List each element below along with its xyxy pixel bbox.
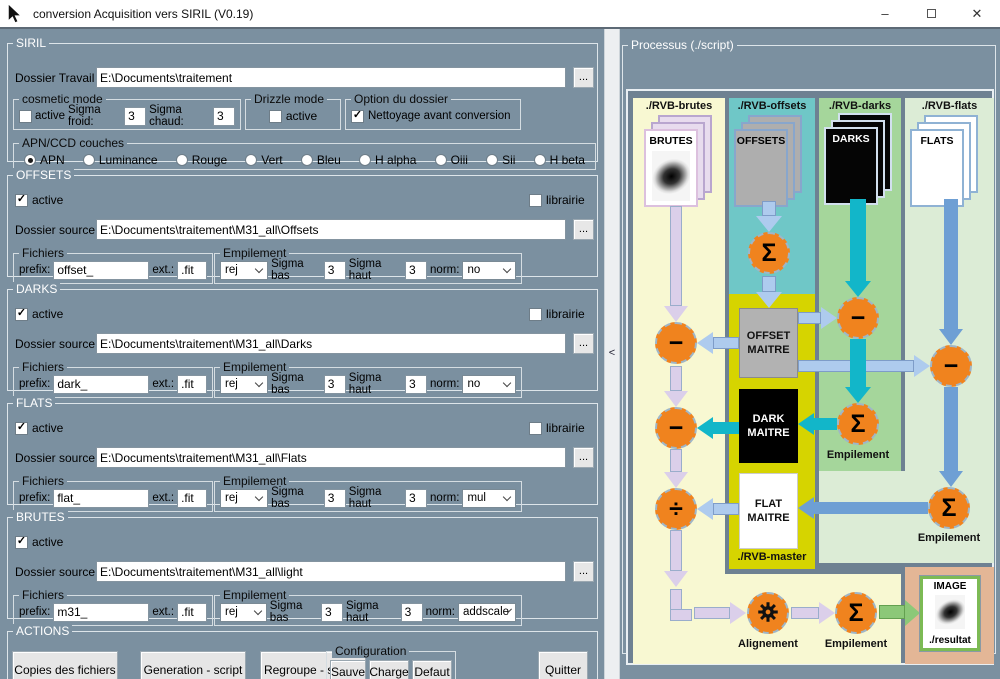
section-title: FLATS	[13, 396, 55, 410]
chevron-down-icon	[255, 264, 263, 272]
prefix-label: prefix:	[19, 378, 50, 390]
section-flats-group: FLATS active librairie Dossier source : …	[7, 396, 598, 505]
flow-arrow	[850, 199, 866, 281]
fichiers-title: Fichiers	[19, 360, 67, 374]
empilement-label: Empilement	[816, 638, 896, 650]
flow-arrowhead	[730, 602, 746, 624]
quit-button[interactable]: Quitter	[538, 651, 588, 679]
galaxy-thumbnail	[652, 151, 690, 201]
flow-arrowhead	[697, 498, 713, 520]
sum-node: Σ	[837, 403, 879, 445]
flow-arrow	[762, 276, 776, 292]
prefix-label: prefix:	[19, 264, 50, 276]
flow-arrow	[670, 366, 682, 391]
nettoyage-label: Nettoyage avant conversion	[368, 110, 511, 122]
section-active[interactable]: active	[15, 535, 63, 549]
chevron-down-icon	[255, 492, 263, 500]
section-librairie[interactable]: librairie	[529, 421, 585, 435]
couches-group: APN/CCD couches APN Luminance Rouge Vert…	[13, 136, 596, 170]
radio-oiii[interactable]: Oiii	[435, 153, 468, 167]
sigma-bas-input[interactable]	[324, 261, 346, 280]
couches-title: APN/CCD couches	[19, 136, 127, 150]
sigma-bas-label: Sigma bas	[271, 372, 321, 396]
section-librairie[interactable]: librairie	[529, 193, 585, 207]
maximize-icon	[927, 9, 936, 18]
sum-node: Σ	[835, 592, 877, 634]
source-dir-browse-button[interactable]: ...	[573, 561, 594, 582]
flow-arrowhead	[845, 281, 871, 297]
flow-arrow	[944, 199, 958, 329]
divide-node: ÷	[655, 488, 697, 530]
brutes-stack: BRUTES	[644, 115, 714, 209]
ext-label: ext.:	[152, 492, 174, 504]
norm-label: norm:	[430, 378, 459, 390]
flow-arrow	[713, 503, 739, 515]
sigma-chaud-input[interactable]	[213, 107, 235, 126]
flow-arrowhead	[845, 387, 871, 403]
darks-stack: DARKS	[824, 113, 894, 207]
fichiers-group: Fichiers prefix: ext.:	[13, 246, 213, 284]
fichiers-title: Fichiers	[19, 474, 67, 488]
flow-arrow	[670, 530, 682, 571]
generate-script-button[interactable]: Generation - script	[140, 651, 246, 679]
radio-vert[interactable]: Vert	[245, 153, 282, 167]
section-title: BRUTES	[13, 510, 68, 524]
radio-luminance[interactable]: Luminance	[83, 153, 158, 167]
source-dir-input[interactable]	[96, 447, 566, 468]
sigma-haut-input[interactable]	[405, 375, 427, 394]
flats-stack: FLATS	[910, 115, 980, 209]
sigma-froid-label: Sigma froid:	[68, 104, 121, 128]
window-controls: – ✕	[862, 0, 1000, 27]
section-darks-group: DARKS active librairie Dossier source : …	[7, 282, 598, 391]
empilement-group: Empilement rej Sigma bas Sigma haut norm…	[214, 246, 522, 284]
source-dir-browse-button[interactable]: ...	[573, 219, 594, 240]
prefix-label: prefix:	[19, 492, 50, 504]
prefix-input[interactable]	[53, 489, 149, 508]
source-dir-label: Dossier source :	[15, 337, 102, 351]
fichiers-group: Fichiers prefix: ext.:	[13, 588, 213, 626]
fichiers-group: Fichiers prefix: ext.:	[13, 360, 213, 398]
result-image-box: IMAGE ./resultat	[920, 576, 980, 651]
align-gear-node	[747, 592, 789, 634]
alignement-label: Alignement	[728, 638, 808, 650]
ext-input[interactable]	[177, 603, 207, 622]
flow-arrow	[713, 337, 739, 349]
flow-arrow	[850, 339, 866, 387]
source-dir-browse-button[interactable]: ...	[573, 447, 594, 468]
sigma-bas-label: Sigma bas	[270, 600, 318, 624]
app-window: { "window": { "title": "conversion Acqui…	[0, 0, 1000, 679]
ext-input[interactable]	[177, 489, 207, 508]
source-dir-label: Dossier source :	[15, 451, 102, 465]
flow-arrowhead	[905, 600, 920, 626]
sigma-haut-label: Sigma haut	[349, 372, 402, 396]
sigma-froid-input[interactable]	[124, 107, 146, 126]
drizzle-active-checkbox[interactable]	[269, 110, 282, 123]
source-dir-browse-button[interactable]: ...	[573, 333, 594, 354]
section-title: OFFSETS	[13, 168, 74, 182]
flow-arrow	[791, 607, 819, 619]
prefix-input[interactable]	[53, 375, 149, 394]
sigma-haut-input[interactable]	[401, 603, 423, 622]
sigma-bas-input[interactable]	[321, 603, 343, 622]
method-select[interactable]: rej	[220, 603, 267, 622]
section-librairie[interactable]: librairie	[529, 307, 585, 321]
source-dir-input[interactable]	[96, 561, 566, 582]
dark-master-box: DARK MAITRE	[739, 389, 798, 463]
empilement-label: Empilement	[909, 532, 989, 544]
flow-arrowhead	[819, 602, 835, 624]
minimize-button[interactable]: –	[862, 0, 908, 27]
chevron-down-icon	[503, 492, 511, 500]
radio-apn[interactable]: APN	[24, 153, 65, 167]
chevron-down-icon	[503, 378, 511, 386]
actions-title: ACTIONS	[13, 624, 72, 638]
empilement-group: Empilement rej Sigma bas Sigma haut norm…	[214, 588, 522, 626]
flow-arrowhead	[939, 471, 963, 487]
section-title: DARKS	[13, 282, 60, 296]
flow-arrow	[798, 312, 821, 324]
source-dir-input[interactable]	[96, 333, 566, 354]
norm-select[interactable]: mul	[462, 489, 516, 508]
flow-arrow	[944, 387, 958, 471]
cosmetic-mode-group: cosmetic mode active Sigma froid: Sigma …	[13, 92, 241, 130]
galaxy-result-thumbnail	[935, 595, 965, 629]
sigma-chaud-label: Sigma chaud:	[149, 104, 210, 128]
sum-node: Σ	[748, 232, 790, 274]
offsets-stack: OFFSETS	[734, 115, 804, 209]
chevron-down-icon	[254, 606, 262, 614]
ext-label: ext.:	[152, 264, 174, 276]
cosmetic-active-label: active	[35, 110, 65, 122]
norm-label: norm:	[430, 264, 459, 276]
flow-arrow	[694, 607, 730, 619]
flow-arrow	[670, 449, 682, 472]
header-offsets: ./RVB-offsets	[729, 100, 815, 112]
sigma-haut-label: Sigma haut	[346, 600, 398, 624]
norm-select[interactable]: no	[462, 261, 516, 280]
collapse-handle[interactable]: <	[605, 347, 619, 359]
norm-label: norm:	[426, 606, 455, 618]
flow-arrowhead	[664, 391, 688, 407]
sigma-bas-input[interactable]	[324, 489, 346, 508]
sigma-bas-label: Sigma bas	[271, 486, 321, 510]
flow-arrow	[670, 206, 682, 306]
flat-master-box: FLAT MAITRE	[739, 473, 798, 549]
drizzle-mode-title: Drizzle mode	[251, 92, 327, 106]
offset-master-box: OFFSET MAITRE	[739, 308, 798, 378]
radio-sii[interactable]: Sii	[486, 153, 515, 167]
norm-select[interactable]: no	[462, 375, 516, 394]
section-active[interactable]: active	[15, 307, 63, 321]
nettoyage-checkbox[interactable]	[351, 110, 364, 123]
panel-splitter[interactable]: <	[604, 29, 620, 679]
flow-arrowhead	[697, 417, 713, 439]
source-dir-label: Dossier source :	[15, 223, 102, 237]
section-active[interactable]: active	[15, 193, 63, 207]
flow-arrowhead	[756, 216, 782, 232]
drizzle-active-label: active	[286, 109, 317, 123]
subtract-node: −	[837, 297, 879, 339]
flow-arrow	[762, 201, 776, 216]
sum-node: Σ	[928, 487, 970, 529]
section-active[interactable]: active	[15, 421, 63, 435]
header-brutes: ./RVB-brutes	[633, 100, 725, 112]
prefix-input[interactable]	[53, 261, 149, 280]
sigma-haut-label: Sigma haut	[349, 486, 402, 510]
flow-arrowhead	[798, 497, 814, 519]
prefix-label: prefix:	[19, 606, 50, 618]
maximize-button[interactable]	[908, 0, 954, 27]
sigma-haut-label: Sigma haut	[349, 258, 402, 282]
fichiers-title: Fichiers	[19, 246, 67, 260]
flow-arrowhead	[914, 355, 930, 377]
work-dir-label: Dossier Travail :	[15, 71, 101, 85]
flow-arrowhead	[697, 332, 713, 354]
process-diagram: ./RVB-brutes ./RVB-offsets ./RVB-darks .…	[626, 89, 994, 665]
close-button[interactable]: ✕	[954, 0, 1000, 27]
ext-label: ext.:	[152, 606, 174, 618]
flow-arrowhead	[939, 329, 963, 345]
work-dir-browse-button[interactable]: ...	[573, 67, 594, 88]
source-dir-label: Dossier source :	[15, 565, 102, 579]
method-select[interactable]: rej	[220, 375, 268, 394]
flow-elbow	[670, 609, 692, 621]
processus-title: Processus (./script)	[628, 38, 737, 52]
sigma-bas-label: Sigma bas	[271, 258, 321, 282]
flow-arrowhead	[664, 306, 688, 322]
configuration-title: Configuration	[332, 644, 409, 658]
empilement-label: Empilement	[818, 449, 898, 461]
header-darks: ./RVB-darks	[819, 100, 901, 112]
flow-arrowhead	[664, 472, 688, 488]
save-config-button[interactable]: Sauve	[330, 660, 366, 679]
section-brutes-group: BRUTES active librairie Dossier source :…	[7, 510, 598, 619]
copy-files-button[interactable]: Copies des fichiers	[12, 651, 118, 679]
norm-label: norm:	[430, 492, 459, 504]
flow-arrowhead	[798, 413, 814, 435]
load-config-button[interactable]: Charge	[369, 660, 409, 679]
method-select[interactable]: rej	[220, 261, 268, 280]
actions-group: ACTIONS Copies des fichiers Generation -…	[7, 624, 598, 679]
siril-group-title: SIRIL	[13, 36, 49, 50]
radio-bleu[interactable]: Bleu	[301, 153, 341, 167]
subtract-node: −	[930, 345, 972, 387]
fichiers-title: Fichiers	[19, 588, 67, 602]
cursor-app-icon	[5, 2, 25, 26]
ext-label: ext.:	[152, 378, 174, 390]
flow-arrow	[713, 422, 739, 434]
flow-arrow	[879, 605, 905, 619]
option-dossier-group: Option du dossier Nettoyage avant conver…	[345, 92, 521, 130]
flow-arrow	[814, 418, 837, 430]
flow-arrowhead	[756, 292, 782, 308]
fichiers-group: Fichiers prefix: ext.:	[13, 474, 213, 512]
method-select[interactable]: rej	[220, 489, 268, 508]
sigma-haut-input[interactable]	[405, 489, 427, 508]
flow-arrow	[814, 502, 928, 514]
flow-arrowhead	[821, 307, 837, 329]
radio-rouge[interactable]: Rouge	[176, 153, 227, 167]
radio-halpha[interactable]: H alpha	[359, 153, 416, 167]
option-dossier-title: Option du dossier	[351, 92, 451, 106]
gear-icon	[755, 599, 781, 628]
empilement-group: Empilement rej Sigma bas Sigma haut norm…	[214, 474, 522, 512]
chevron-down-icon	[503, 264, 511, 272]
subtract-node: −	[655, 407, 697, 449]
source-dir-input[interactable]	[96, 219, 566, 240]
drizzle-mode-group: Drizzle mode active	[245, 92, 341, 130]
subtract-node: −	[655, 322, 697, 364]
norm-select[interactable]: addscale	[458, 603, 516, 622]
default-config-button[interactable]: Defaut	[412, 660, 452, 679]
master-folder-label: ./RVB-master	[729, 551, 815, 563]
cosmetic-active-checkbox[interactable]	[19, 110, 32, 123]
processus-group: Processus (./script) ./RVB-brutes ./RVB-…	[622, 38, 996, 654]
sigma-bas-input[interactable]	[324, 375, 346, 394]
flow-arrowhead	[664, 571, 688, 587]
window-body: SIRIL Dossier Travail : ... cosmetic mod…	[0, 27, 1000, 679]
configuration-group: Configuration Sauve Charge Defaut	[326, 644, 456, 679]
siril-group: SIRIL Dossier Travail : ... cosmetic mod…	[7, 36, 598, 162]
window-title: conversion Acquisition vers SIRIL (V0.19…	[33, 7, 253, 21]
prefix-input[interactable]	[53, 603, 149, 622]
empilement-group: Empilement rej Sigma bas Sigma haut norm…	[214, 360, 522, 398]
header-flats: ./RVB-flats	[905, 100, 994, 112]
ext-input[interactable]	[177, 261, 207, 280]
work-dir-input[interactable]	[96, 67, 566, 88]
sigma-haut-input[interactable]	[405, 261, 427, 280]
ext-input[interactable]	[177, 375, 207, 394]
radio-hbeta[interactable]: H beta	[534, 153, 585, 167]
chevron-down-icon	[255, 378, 263, 386]
title-bar: conversion Acquisition vers SIRIL (V0.19…	[0, 0, 1000, 27]
section-offsets-group: OFFSETS active librairie Dossier source …	[7, 168, 598, 277]
